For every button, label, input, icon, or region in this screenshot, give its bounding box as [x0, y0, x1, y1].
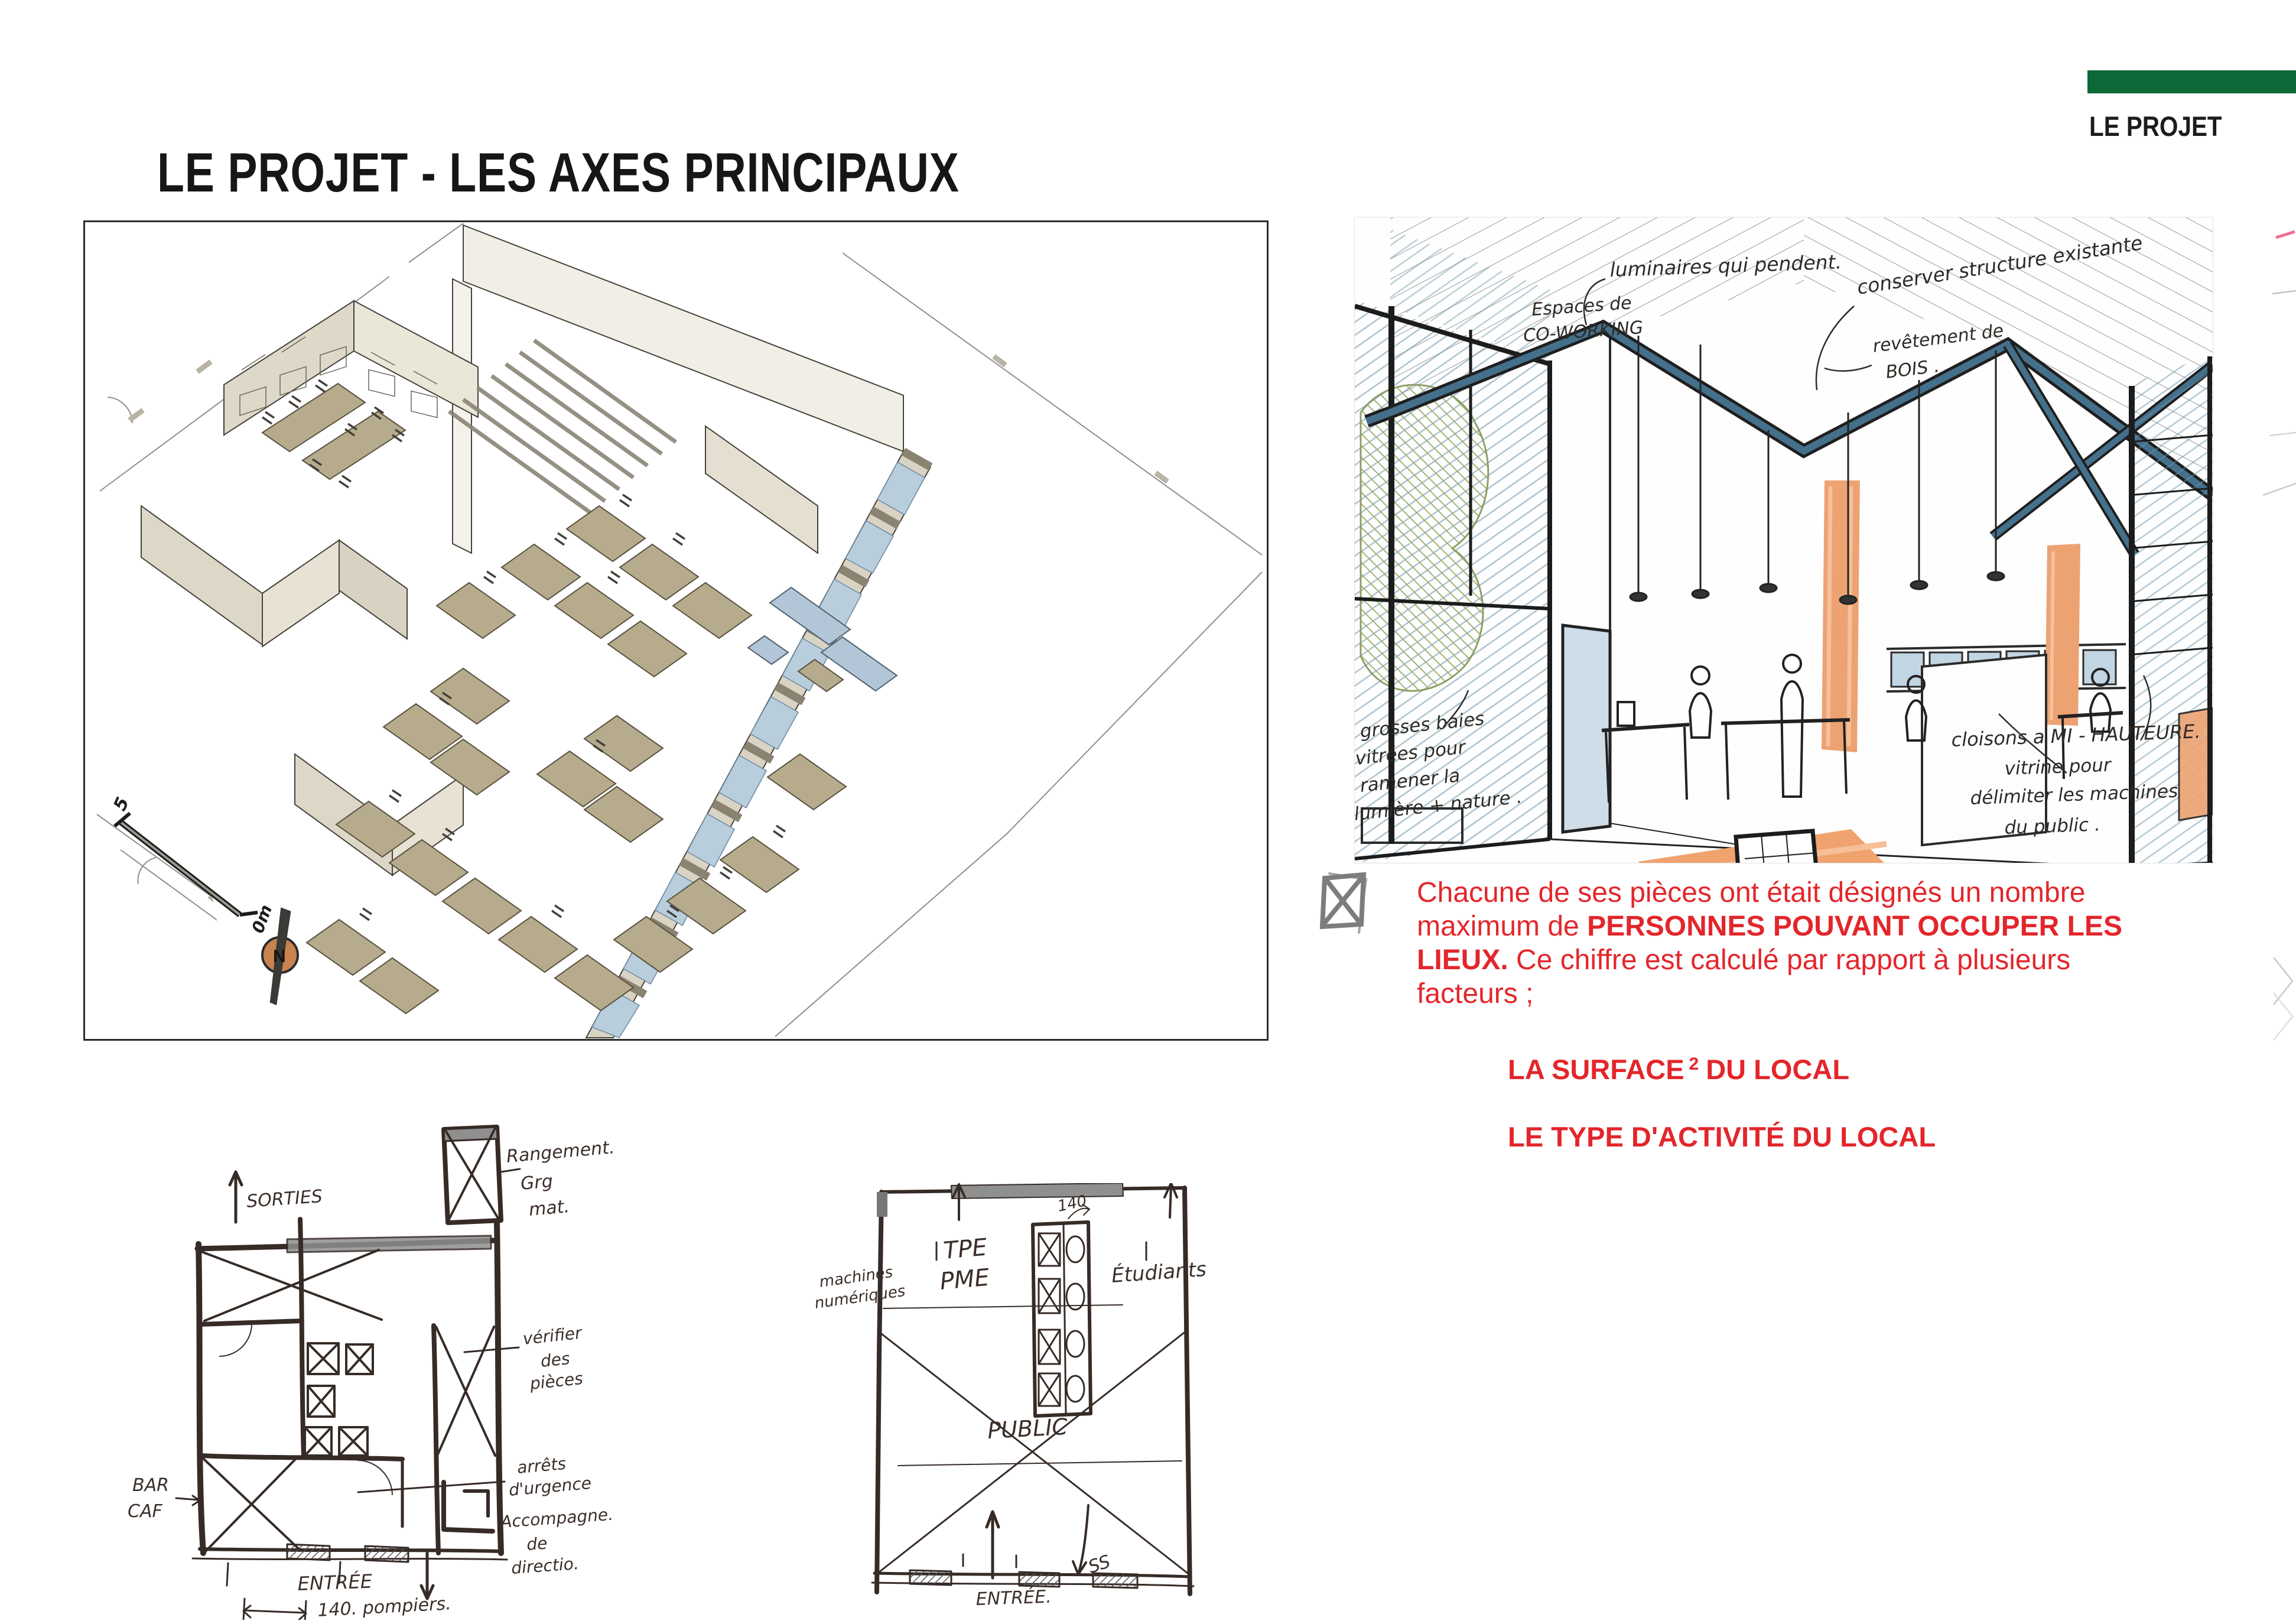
label-accompagne-3: directio.	[510, 1554, 580, 1578]
page-title: LE PROJET - LES AXES PRINCIPAUX	[157, 141, 960, 204]
factor-surface-sup: 2	[1689, 1054, 1699, 1074]
label-rangement-3: mat.	[528, 1196, 571, 1220]
axonometric-drawing: 5 0m N	[85, 222, 1267, 1039]
note-line: Chacune de ses pièces ont était désignés…	[1417, 877, 2085, 908]
factor-surface-post: DU LOCAL	[1706, 1054, 1849, 1085]
scan-artifacts	[2256, 225, 2296, 1052]
corner-section-label: LE PROJET	[2089, 110, 2222, 142]
label-accompagne-2: de	[526, 1534, 548, 1554]
north-label: N	[273, 947, 286, 966]
label-rangement-1: Rangement.	[506, 1137, 616, 1167]
note-line-bold: LIEUX.	[1417, 944, 1508, 976]
floor-plan-sketch-middle: machines numériques TPE PME 140 Étudiant…	[815, 1183, 1235, 1616]
label-arrets-1: arrêts	[516, 1454, 567, 1477]
label-caf: CAF	[128, 1501, 162, 1522]
note-line: maximum de	[1417, 911, 1587, 942]
label-sorties: SORTIES	[246, 1186, 323, 1212]
interior-sketch-figure: luminaires qui pendent. conserver struct…	[1354, 217, 2213, 863]
plan-middle-labels: machines numériques TPE PME 140 Étudiant…	[815, 1192, 1207, 1610]
note-line-bold: PERSONNES POUVANT OCCUPER LES	[1587, 911, 2122, 942]
factor-surface-text: LA SURFACE	[1508, 1054, 1684, 1085]
label-pompiers: 140. pompiers.	[317, 1593, 452, 1620]
factor-activity: LE TYPE D'ACTIVITÉ DU LOCAL	[1508, 1120, 1936, 1153]
floor-plan-sketch-left: SORTIES Rangement. Grg mat. vérifier des…	[110, 1113, 653, 1620]
label-entree: ENTRÉE.	[975, 1586, 1052, 1610]
label-etudiants: Étudiants	[1111, 1257, 1207, 1288]
label-arrets-2: d'urgence	[508, 1473, 592, 1500]
label-verifier-2: des	[539, 1349, 571, 1371]
factor-surface: LA SURFACE2DU LOCAL	[1508, 1053, 1849, 1086]
label-pme: PME	[939, 1264, 991, 1295]
note-line: facteurs ;	[1417, 978, 1533, 1009]
checkbox-icon	[1316, 872, 1373, 937]
axonometric-figure-frame: 5 0m N	[83, 220, 1269, 1041]
label-bar: BAR	[132, 1475, 169, 1496]
presentation-page: LE PROJET - LES AXES PRINCIPAUX LE PROJE…	[0, 0, 2296, 1624]
label-verifier-3: pièces	[528, 1369, 584, 1394]
label-accompagne-1: Accompagne.	[499, 1505, 614, 1532]
note-line: Ce chiffre est calculé par rapport à plu…	[1508, 944, 2071, 976]
label-verifier-1: vérifier	[522, 1323, 583, 1349]
laptop	[1736, 831, 1827, 863]
corner-green-bar	[2087, 70, 2296, 93]
annotation-vitrine-3: du public .	[2004, 814, 2100, 839]
annotation-vitrine-1: vitrine pour	[2004, 755, 2112, 779]
label-tpe: TPE	[942, 1234, 988, 1265]
label-entree: ENTRÉE	[297, 1570, 373, 1595]
note-paragraph: Chacune de ses pièces ont était désignés…	[1417, 876, 2244, 1011]
scale-start-label: 5	[110, 794, 134, 814]
label-public: PUBLIC	[987, 1414, 1068, 1444]
interior-sketch: luminaires qui pendent. conserver struct…	[1355, 217, 2213, 863]
label-rangement-2: Grg	[520, 1171, 554, 1194]
